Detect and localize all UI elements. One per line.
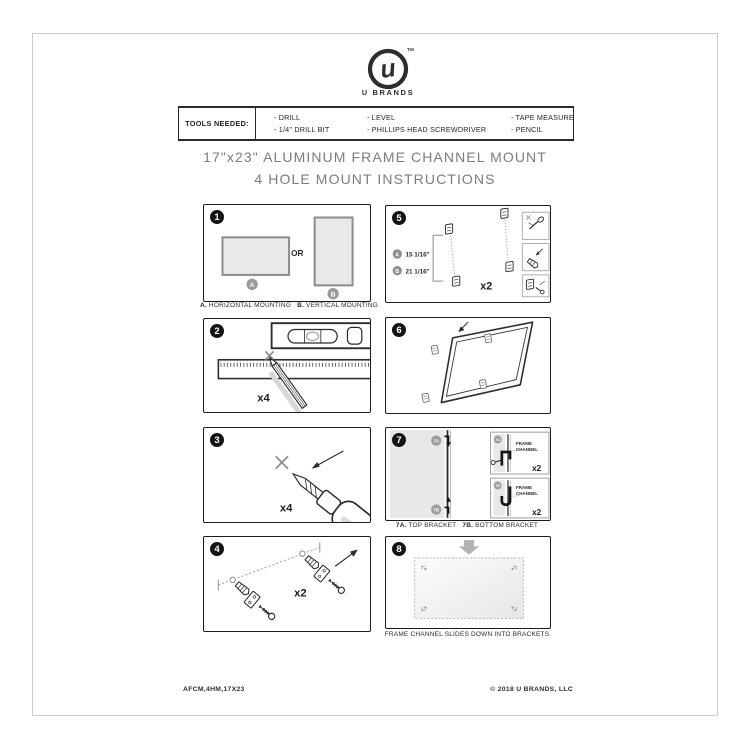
marker-a-label: A	[250, 282, 255, 289]
step-3-count: x4	[280, 502, 293, 514]
brand-name: U BRANDS	[338, 88, 438, 97]
detail-box-top-bracket: 7A x2	[491, 432, 549, 474]
step-7-panel: 7 FRAME CHANNEL FRAME CHANNEL 7A 7B 7A	[385, 427, 551, 521]
page-title: 17"x23" ALUMINUM FRAME CHANNEL MOUNT 4 H…	[0, 147, 750, 190]
top-bracket-icon	[444, 436, 448, 442]
step-1-illustration: A OR B	[204, 205, 370, 301]
slide-down-arrow-icon	[459, 540, 480, 555]
caption-7a-prefix: 7A.	[396, 522, 407, 529]
tools-needed-label: TOOLS NEEDED:	[179, 108, 256, 139]
step-8-illustration	[386, 537, 550, 628]
detail-bottom-count: x2	[532, 508, 542, 517]
tool-item: - TAPE MEASURE	[511, 112, 574, 124]
level-icon	[272, 323, 370, 348]
title-line-2: 4 HOLE MOUNT INSTRUCTIONS	[0, 169, 750, 191]
caption-7b-prefix: 7B.	[462, 522, 473, 529]
step-5-count: x2	[480, 280, 492, 292]
step-8-caption: FRAME CHANNEL SLIDES DOWN INTO BRACKETS	[383, 631, 551, 638]
step-2-illustration: x4	[204, 319, 370, 412]
tools-column-3: - TAPE MEASURE - PENCIL	[511, 112, 574, 136]
caption-a-prefix: A.	[200, 302, 207, 309]
instruction-sheet-page: u TM U BRANDS TOOLS NEEDED: - DRILL - 1/…	[0, 0, 750, 750]
or-text: OR	[291, 249, 303, 258]
tool-item: - PENCIL	[511, 124, 574, 136]
step-2-count: x4	[257, 392, 270, 404]
step-4-panel: 4	[203, 536, 371, 632]
step-7-number: 7	[392, 433, 406, 447]
bottom-bracket-icon	[444, 507, 448, 513]
step-1-number: 1	[210, 210, 224, 224]
horizontal-board-icon	[222, 237, 289, 275]
direction-arrow-icon	[312, 451, 344, 469]
tool-item: - 1/4" DRILL BIT	[274, 124, 329, 136]
step-6-number: 6	[392, 323, 406, 337]
caption-7a-text: TOP BRACKET	[409, 522, 457, 529]
step-2-number: 2	[210, 324, 224, 338]
ubrands-logo-icon: u	[367, 48, 409, 90]
marker-b-label: B	[395, 269, 399, 275]
vertical-board-icon	[315, 218, 353, 286]
ruler-icon	[218, 360, 370, 379]
step-1-caption: A. HORIZONTAL MOUNTING B. VERTICAL MOUNT…	[200, 302, 372, 309]
step-3-number: 3	[210, 433, 224, 447]
caption-b-text: VERTICAL MOUNTING	[306, 302, 378, 309]
step-4-illustration: x2	[204, 537, 370, 631]
logo-monogram: u	[378, 54, 397, 84]
dimension-bracket-line	[433, 235, 443, 281]
detail-box-attach-bracket	[522, 275, 549, 297]
step-5-panel: 5 A 15 1/16" B 21 1/16" x2	[385, 205, 551, 303]
step-8-panel: 8	[385, 536, 551, 629]
tools-column-2: - LEVEL - PHILLIPS HEAD SCREWDRIVER	[367, 112, 486, 136]
detail-7a-marker: 7A	[495, 438, 500, 442]
caption-7b-text: BOTTOM BRACKET	[475, 522, 538, 529]
drill-icon	[284, 462, 370, 522]
step-4-count: x2	[294, 587, 307, 599]
detail-top-count: x2	[532, 464, 542, 473]
step-1-panel: 1 A OR B	[203, 204, 371, 302]
marker-a-label: A	[395, 252, 399, 258]
caption-a-text: HORIZONTAL MOUNTING	[209, 302, 291, 309]
step-3-panel: 3 x4	[203, 427, 371, 523]
tools-column-1: - DRILL - 1/4" DRILL BIT	[274, 112, 329, 136]
dimension-a-value: 15 1/16"	[405, 252, 429, 259]
marker-b-label: B	[331, 291, 336, 298]
dimension-b-value: 21 1/16"	[405, 268, 429, 275]
title-line-1: 17"x23" ALUMINUM FRAME CHANNEL MOUNT	[0, 147, 750, 169]
x-mark-icon	[276, 456, 288, 469]
step-4-number: 4	[210, 542, 224, 556]
step-8-number: 8	[392, 542, 406, 556]
footer-copyright: © 2018 U BRANDS, LLC	[413, 686, 573, 693]
frame-channel-board	[415, 558, 524, 619]
detail-box-mark-hole	[522, 212, 549, 239]
alignment-dashed-line	[505, 220, 508, 261]
frame-channel-label-top: FRAME CHANNEL	[516, 441, 540, 452]
marker-7a-label: 7A	[433, 438, 439, 443]
frame-channel-label-bottom: FRAME CHANNEL	[516, 485, 540, 496]
caption-b-prefix: B.	[297, 302, 304, 309]
step-7-caption: 7A. TOP BRACKET 7B. BOTTOM BRACKET	[383, 522, 551, 529]
detail-box-insert-anchor	[522, 244, 549, 271]
step-5-number: 5	[392, 211, 406, 225]
step-5-illustration: A 15 1/16" B 21 1/16" x2	[386, 206, 550, 302]
tools-needed-table: TOOLS NEEDED: - DRILL - 1/4" DRILL BIT -…	[178, 106, 574, 141]
drill-hole	[300, 551, 305, 556]
tool-item: - DRILL	[274, 112, 329, 124]
footer-part-number: AFCM,4HM,17X23	[183, 686, 245, 693]
detail-7b-marker: 7B	[495, 484, 500, 488]
tool-item: - LEVEL	[367, 112, 486, 124]
alignment-dashed-line	[451, 235, 455, 276]
marker-7b-label: 7B	[433, 507, 439, 512]
direction-arrow-icon	[335, 550, 358, 567]
direction-arrow-icon	[458, 322, 468, 332]
trademark-symbol: TM	[407, 47, 414, 52]
tool-item: - PHILLIPS HEAD SCREWDRIVER	[367, 124, 486, 136]
step-6-panel: 6	[385, 317, 551, 414]
drill-hole	[230, 577, 235, 582]
step-6-illustration	[386, 318, 550, 413]
step-3-illustration: x4	[204, 428, 370, 522]
step-2-panel: 2	[203, 318, 371, 413]
